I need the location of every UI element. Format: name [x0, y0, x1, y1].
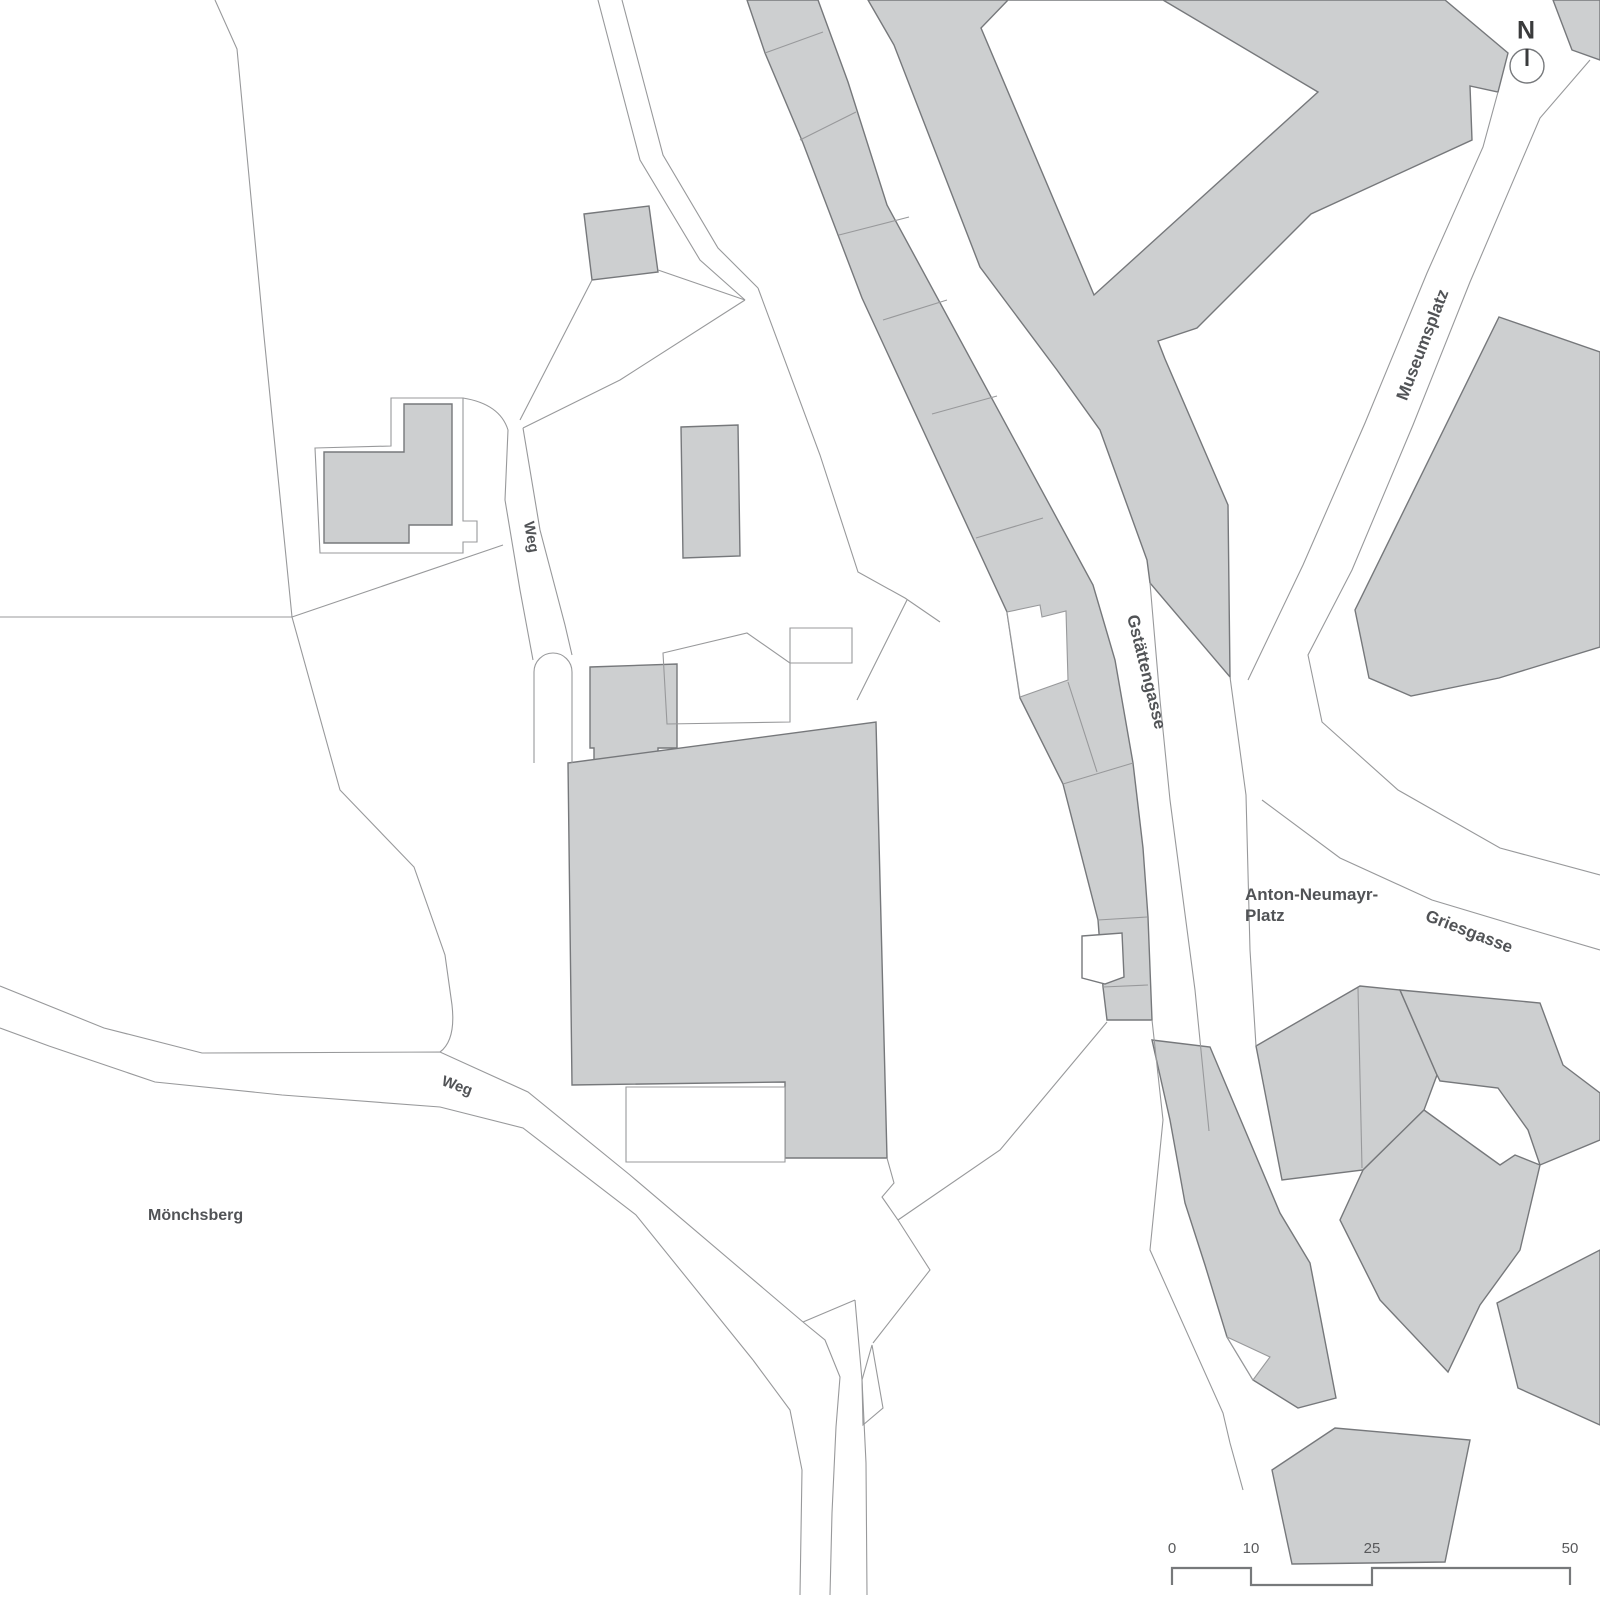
notch-parcel	[626, 1087, 785, 1162]
path-bottom-1	[803, 1322, 840, 1595]
parcel-b1-se	[658, 270, 745, 300]
boundary-diag	[292, 545, 503, 617]
building-east-large	[1355, 317, 1600, 696]
zigzag-se-corner	[873, 1158, 930, 1343]
scale-label-25: 25	[1364, 1540, 1381, 1557]
north-arrow-icon	[1510, 49, 1544, 83]
roof-parcel	[663, 633, 790, 724]
lane-stub-rounded	[534, 653, 572, 763]
site-plan-map	[0, 0, 1600, 1600]
white-building	[1082, 933, 1124, 984]
label-anton-line1: Anton-Neumayr-	[1245, 884, 1378, 905]
building-small-square	[584, 206, 658, 280]
diag-to-street	[898, 1022, 1107, 1220]
label-moenchsberg: Mönchsberg	[148, 1207, 243, 1225]
path-bottom-2	[753, 1360, 802, 1595]
building-l-shaped	[324, 404, 452, 543]
parcel-diag-ne	[857, 600, 907, 700]
label-anton-neumayr-platz: Anton-Neumayr- Platz	[1245, 884, 1378, 926]
platz-west-line	[1230, 677, 1256, 1046]
scale-label-10: 10	[1243, 1540, 1260, 1557]
building-corner-ne	[1553, 0, 1600, 60]
path-bottom-3	[855, 1300, 867, 1595]
building-block-f	[1497, 1250, 1600, 1425]
scale-label-0: 0	[1168, 1540, 1176, 1557]
lane-to-weg	[523, 300, 745, 428]
buildings-layer	[324, 0, 1600, 1564]
building-rect-center	[681, 425, 740, 558]
gap-parcel-white	[1007, 605, 1068, 697]
label-anton-line2: Platz	[1245, 905, 1378, 926]
path-bottom-4	[803, 1300, 855, 1322]
scale-label-50: 50	[1562, 1540, 1579, 1557]
scale-bar	[1172, 1568, 1570, 1585]
small-rect-parcel	[790, 628, 852, 663]
wedge-parcel	[862, 1345, 883, 1425]
scale-bar-shape	[1172, 1568, 1570, 1585]
site-plan: Museumsplatz Gstättengasse Weg Weg Anton…	[0, 0, 1600, 1600]
label-north-n: N	[1517, 17, 1535, 46]
